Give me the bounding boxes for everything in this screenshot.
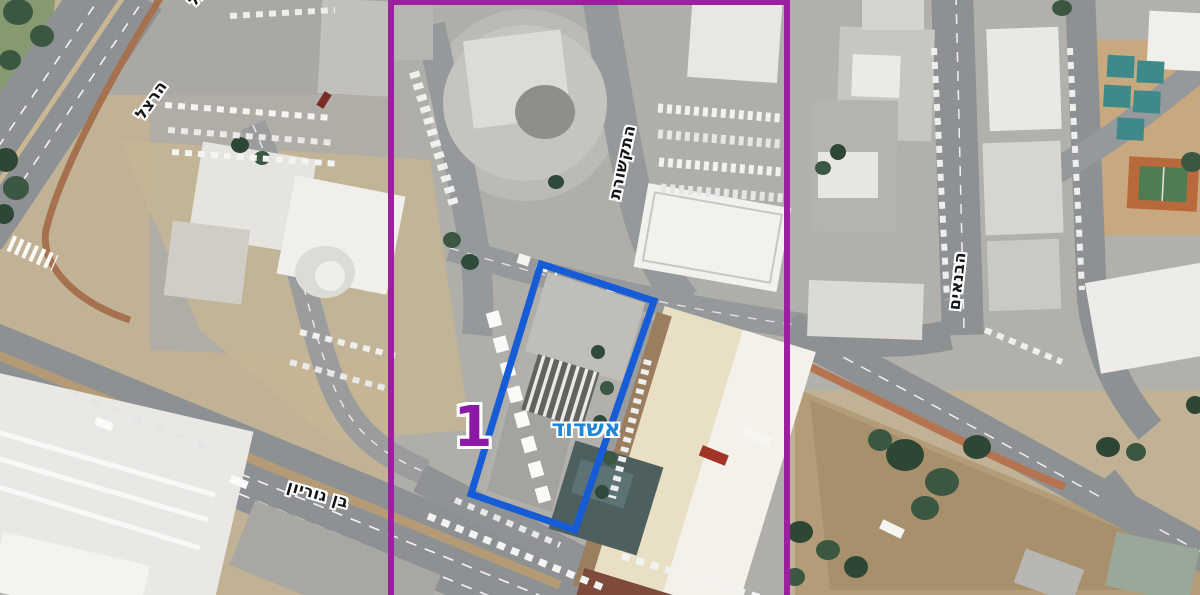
- parcel-number-1[interactable]: 1: [454, 400, 493, 456]
- sheet-boundary-left: [388, 0, 394, 595]
- map-viewport[interactable]: הרצל הרצל בן גוריון התקשורת הבנאים אשדוד…: [0, 0, 1200, 595]
- sheet-boundary-top: [388, 0, 790, 5]
- satellite-imagery: [0, 0, 1200, 595]
- city-label-ashdod: אשדוד: [551, 416, 620, 442]
- sheet-boundary-right: [784, 0, 790, 595]
